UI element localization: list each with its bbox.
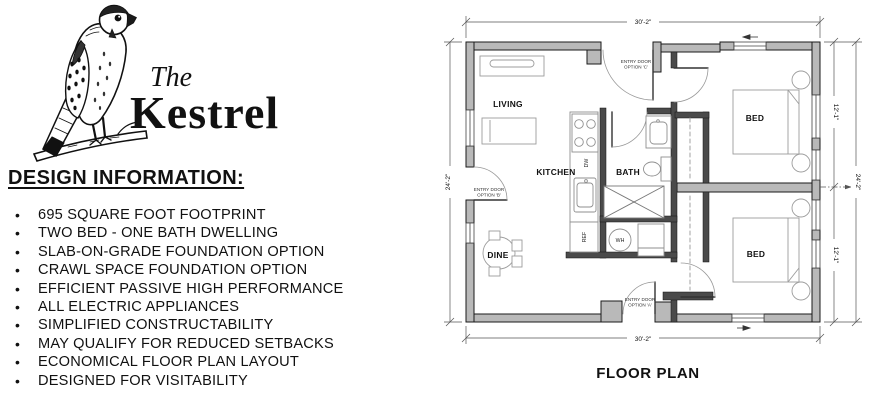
door-arc-bath bbox=[612, 112, 647, 147]
room-label-dine: DINE bbox=[487, 250, 508, 260]
entry-door-b-label-2: OPTION 'B' bbox=[477, 193, 501, 198]
dining-chair bbox=[489, 267, 500, 276]
dining-chair bbox=[512, 256, 522, 267]
dim-height-left: 24'-2" bbox=[445, 173, 452, 190]
nightstand bbox=[792, 282, 810, 300]
design-info-item: TWO BED - ONE BATH DWELLING bbox=[8, 224, 433, 242]
nightstand bbox=[792, 71, 810, 89]
design-info-item: SIMPLIFIED CONSTRUCTABILITY bbox=[8, 316, 433, 334]
design-info-heading: DESIGN INFORMATION: bbox=[8, 167, 244, 190]
floor-plan-title: FLOOR PLAN bbox=[596, 365, 700, 382]
nightstand bbox=[792, 199, 810, 217]
info-panel: The Kestrel DESIGN INFORMATION: 695 SQUA… bbox=[0, 0, 440, 401]
dining-chair bbox=[512, 240, 522, 251]
entry-door-b-label-1: ENTRY DOOR bbox=[474, 187, 505, 192]
design-info-item: ECONOMICAL FLOOR PLAN LAYOUT bbox=[8, 353, 433, 371]
entry-door-a-label-2: OPTION 'A' bbox=[628, 303, 652, 308]
appliance-label-wh: WH bbox=[616, 238, 625, 244]
dim-width-top: 30'-2" bbox=[635, 19, 652, 26]
dim-width-bottom: 30'-2" bbox=[635, 336, 652, 343]
design-info-item: ALL ELECTRIC APPLIANCES bbox=[8, 298, 433, 316]
room-label-bath: BATH bbox=[616, 167, 640, 177]
door-arc-bed-top bbox=[674, 68, 708, 102]
dining-chair bbox=[489, 231, 500, 240]
design-info-list: 695 SQUARE FOOT FOOTPRINT TWO BED - ONE … bbox=[8, 206, 433, 390]
design-info-item: MAY QUALIFY FOR REDUCED SETBACKS bbox=[8, 335, 433, 353]
room-label-bed-bottom: BED bbox=[747, 249, 766, 259]
room-label-living: LIVING bbox=[493, 99, 523, 109]
toilet-bowl bbox=[644, 162, 661, 176]
design-info-item: CRAWL SPACE FOUNDATION OPTION bbox=[8, 261, 433, 279]
nightstand bbox=[792, 154, 810, 172]
floor-plan-panel: 30'-2" 30'-2" 24'-2" 24'-2" 12'-1" 12'-1… bbox=[440, 0, 875, 401]
design-info-item: SLAB-ON-GRADE FOUNDATION OPTION bbox=[8, 243, 433, 261]
bath-sink bbox=[650, 122, 667, 144]
design-info-item: 695 SQUARE FOOT FOOTPRINT bbox=[8, 206, 433, 224]
door-arc-entry-c bbox=[603, 50, 653, 100]
bed-top bbox=[733, 90, 799, 154]
stove bbox=[572, 114, 598, 152]
bed-bottom bbox=[733, 218, 799, 282]
entry-door-a-label-1: ENTRY DOOR bbox=[625, 297, 656, 302]
dim-height-right: 24'-2" bbox=[854, 174, 861, 191]
toilet-tank bbox=[661, 157, 671, 181]
room-label-kitchen: KITCHEN bbox=[536, 167, 575, 177]
dim-bed-top-height: 12'-1" bbox=[832, 104, 839, 121]
entry-door-c-label-2: OPTION 'C' bbox=[624, 65, 648, 70]
appliance-label-ref: REF bbox=[582, 232, 588, 242]
kestrel-design-sheet: The Kestrel DESIGN INFORMATION: 695 SQUA… bbox=[0, 0, 875, 401]
design-info-item: EFFICIENT PASSIVE HIGH PERFORMANCE bbox=[8, 280, 433, 298]
furniture bbox=[480, 56, 810, 300]
window-egress-arrows bbox=[737, 35, 758, 331]
dim-bed-bottom-height: 12'-1" bbox=[832, 247, 839, 264]
floor-plan-drawing: 30'-2" 30'-2" 24'-2" 24'-2" 12'-1" 12'-1… bbox=[440, 0, 875, 401]
appliance-label-dw: DW bbox=[584, 159, 590, 168]
washer-dryer bbox=[638, 224, 664, 256]
entry-door-c-label-1: ENTRY DOOR bbox=[621, 59, 652, 64]
room-label-bed-top: BED bbox=[746, 113, 765, 123]
design-info-item: DESIGNED FOR VISITABILITY bbox=[8, 372, 433, 390]
logo-name: Kestrel bbox=[130, 86, 279, 139]
